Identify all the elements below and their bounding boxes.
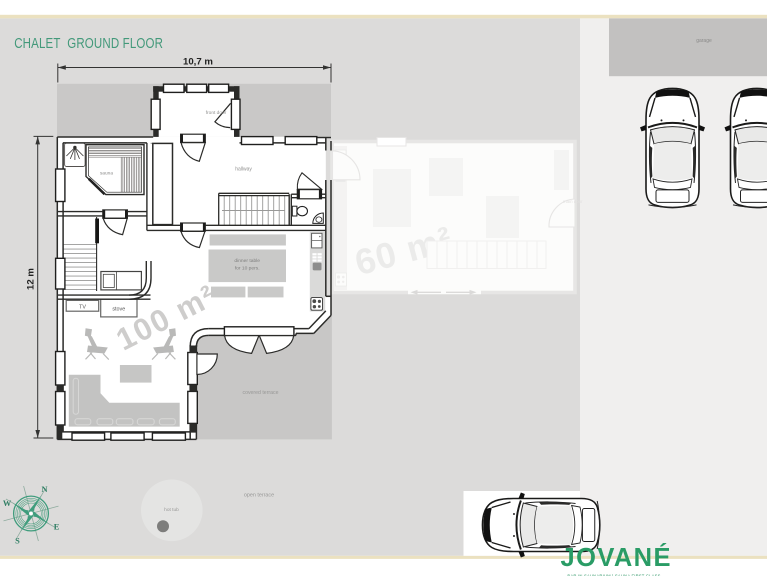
svg-text:stove: stove xyxy=(112,307,125,313)
svg-text:12 m: 12 m xyxy=(26,268,37,290)
svg-text:dinner table: dinner table xyxy=(234,258,260,264)
svg-text:hallway: hallway xyxy=(235,167,252,173)
svg-text:CHALET GROUND FLOOR: CHALET GROUND FLOOR xyxy=(14,35,163,52)
svg-text:garage: garage xyxy=(696,38,712,44)
svg-text:sauna: sauna xyxy=(100,172,113,177)
svg-text:for 10 pers.: for 10 pers. xyxy=(235,266,260,272)
svg-text:10,7 m: 10,7 m xyxy=(183,57,213,68)
svg-text:S: S xyxy=(15,537,20,546)
svg-text:main door: main door xyxy=(563,199,583,204)
svg-text:JOVANÉ: JOVANÉ xyxy=(561,543,672,572)
svg-text:E: E xyxy=(54,523,60,532)
svg-text:W: W xyxy=(3,499,12,508)
svg-text:TV: TV xyxy=(79,304,86,310)
svg-text:N: N xyxy=(41,485,47,494)
svg-text:covered terrace: covered terrace xyxy=(242,390,278,396)
svg-text:hot tub: hot tub xyxy=(164,507,179,513)
svg-text:front door: front door xyxy=(206,110,227,116)
svg-text:open terrace: open terrace xyxy=(244,493,274,499)
